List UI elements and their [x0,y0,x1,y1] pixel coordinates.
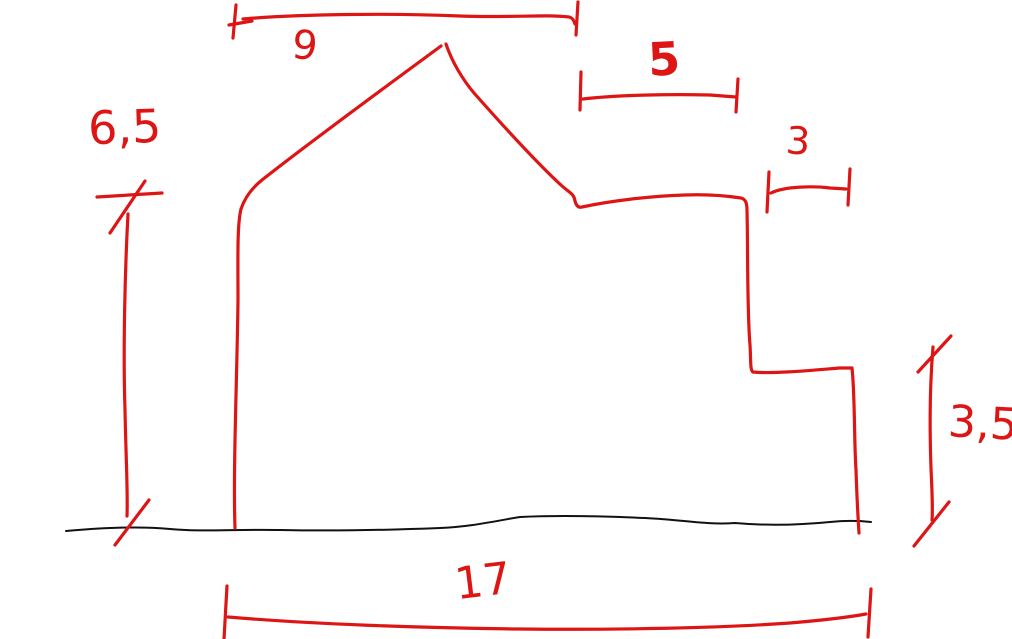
dim-9-right-tick [576,2,578,35]
dim-label-step-width: 3 [785,121,812,161]
sketch-strokes-layer [0,0,1012,639]
dim-65-line [124,214,128,516]
dim-9-line [243,14,575,24]
dimension-left-height [97,181,162,545]
dimension-roof-top-width [229,2,578,38]
dim-9-left-tick [233,5,236,38]
dim-label-roof-top-width: 9 [290,25,319,67]
dim-label-upper-right-width: 5 [647,35,681,83]
dim-35-line [930,347,933,520]
building-outline-right [446,44,859,533]
dimension-right-height [914,336,951,546]
dim-17-left-tick [224,586,227,639]
dim-9-left-cross [229,21,252,25]
dim-5-line [583,95,736,99]
ground-line [66,516,871,531]
dim-5-right-tick [736,79,738,112]
drawing-canvas[interactable]: 9 5 3 6,5 3,5 17 [0,0,1012,639]
dim-label-right-height: 3,5 [947,400,1012,448]
dim-65-top-tick [97,193,162,197]
dim-3-right-tick [848,169,850,205]
building-outline-left [234,46,441,528]
dimension-step-width [767,169,850,212]
dimension-total-width [224,586,871,639]
dim-65-bottom-slash [115,500,149,545]
dim-17-right-tick [868,589,871,637]
dim-label-total-width: 17 [453,557,514,607]
dim-3-left-tick [767,172,769,212]
dim-17-line [228,614,866,629]
dim-label-left-height: 6,5 [87,103,162,152]
dim-35-top-slash [918,336,951,372]
dim-5-left-tick [580,72,581,110]
dim-3-line [771,187,846,193]
